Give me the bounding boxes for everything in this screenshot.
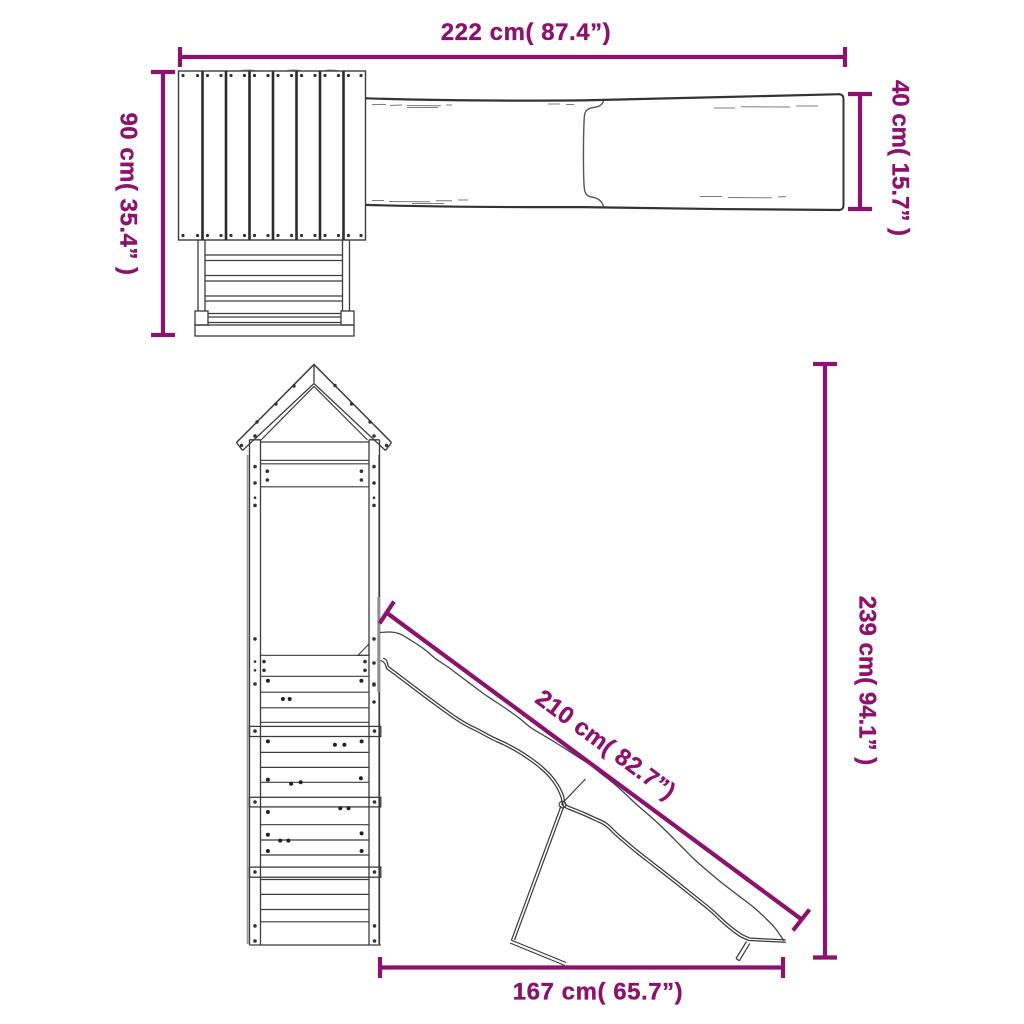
svg-text:222 cm( 87.4”): 222 cm( 87.4”)	[441, 19, 611, 46]
svg-text:90 cm( 35.4” ): 90 cm( 35.4” )	[115, 112, 142, 275]
svg-text:167 cm( 65.7”): 167 cm( 65.7”)	[513, 979, 683, 1006]
svg-text:40 cm( 15.7” ): 40 cm( 15.7” )	[887, 80, 914, 236]
svg-text:239 cm( 94.1” ): 239 cm( 94.1” )	[854, 596, 881, 765]
